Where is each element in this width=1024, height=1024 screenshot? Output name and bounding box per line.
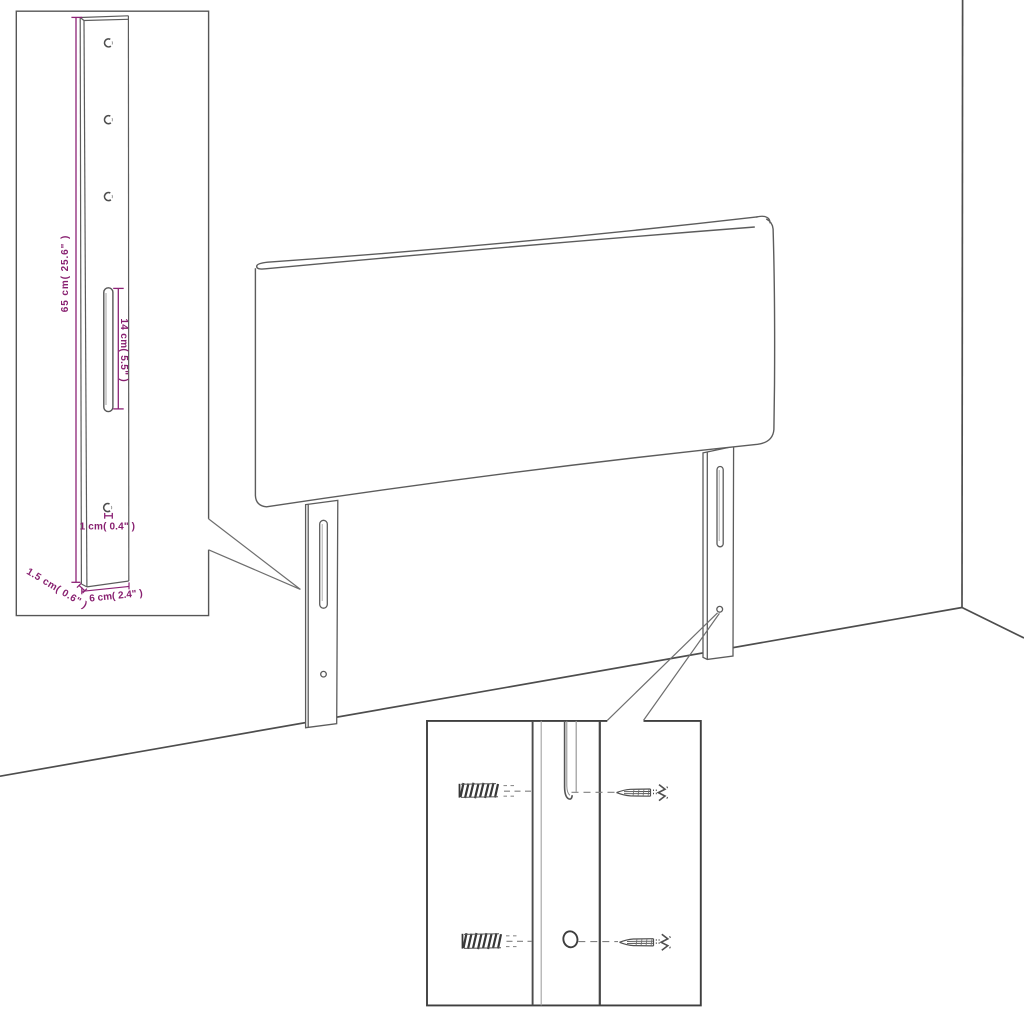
- svg-text:65 cm( 25.6" ): 65 cm( 25.6" ): [60, 235, 71, 312]
- svg-text:1 cm( 0.4" ): 1 cm( 0.4" ): [80, 522, 135, 533]
- svg-text:14 cm( 5.5" ): 14 cm( 5.5" ): [118, 318, 129, 382]
